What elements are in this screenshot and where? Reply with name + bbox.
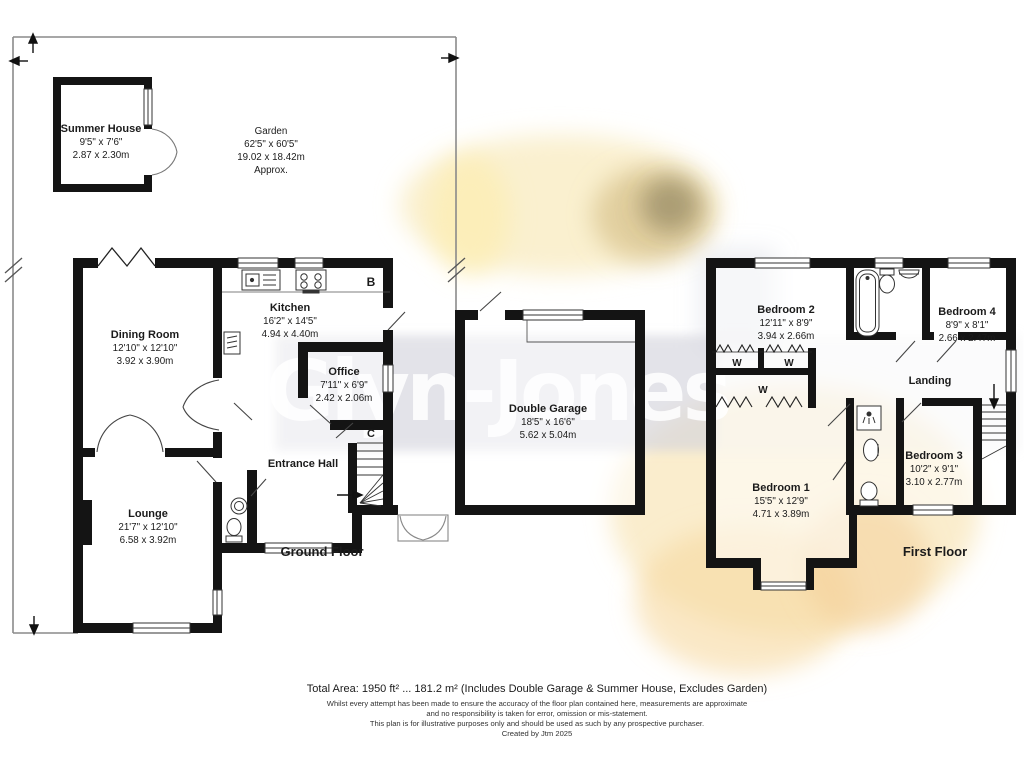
entrance-hall-name: Entrance Hall [268, 458, 338, 470]
bathroom-toilet-icon [880, 269, 895, 293]
svg-text:16'2" x 14'5": 16'2" x 14'5" [263, 316, 317, 327]
svg-text:18'5" x 16'6": 18'5" x 16'6" [521, 417, 575, 428]
footer: Total Area: 1950 ft² ... 181.2 m² (Inclu… [307, 683, 767, 738]
bedroom3-name: Bedroom 3 [905, 450, 962, 462]
cupboard-marker: C [367, 428, 375, 440]
bedroom1-name: Bedroom 1 [752, 482, 809, 494]
kitchen-name: Kitchen [270, 302, 311, 314]
svg-text:3.92 x 3.90m: 3.92 x 3.90m [117, 356, 174, 367]
wc-basin-icon [231, 498, 247, 514]
svg-text:10'2" x 9'1": 10'2" x 9'1" [910, 464, 959, 475]
svg-text:4.94 x 4.40m: 4.94 x 4.40m [262, 329, 319, 340]
svg-text:12'10" x 12'10": 12'10" x 12'10" [113, 343, 178, 354]
summer-house-window [144, 89, 152, 125]
front-door [398, 515, 448, 541]
created-by-text: Created by Jtm 2025 [502, 729, 573, 738]
bath-icon [856, 270, 879, 336]
svg-text:5.62 x 5.04m: 5.62 x 5.04m [520, 430, 577, 441]
svg-text:21'7" x 12'10": 21'7" x 12'10" [118, 522, 178, 533]
summer-house-name: Summer House [61, 123, 142, 135]
hob-icon [296, 270, 326, 293]
svg-text:62'5" x 60'5": 62'5" x 60'5" [244, 139, 298, 150]
office-name: Office [328, 366, 359, 378]
bedroom4-name: Bedroom 4 [938, 306, 996, 318]
ground-floor-label: Ground Floor [280, 544, 363, 559]
summer-house-doors [152, 129, 177, 175]
wardrobe-marker-2: W [784, 358, 794, 369]
shower-basin-icon [864, 439, 879, 461]
svg-text:15'5" x 12'9": 15'5" x 12'9" [754, 496, 808, 507]
disclaimer-line-2: and no responsibility is taken for error… [426, 709, 647, 718]
wardrobe-marker-3: W [758, 385, 768, 396]
shower-toilet-icon [860, 482, 878, 506]
garage-door-swing [480, 292, 501, 311]
garage-name: Double Garage [509, 403, 587, 415]
bedroom2-name: Bedroom 2 [757, 304, 814, 316]
floorplan-canvas: Glyn-Jones Summer House [0, 0, 1024, 768]
shower-icon [857, 406, 881, 430]
svg-text:3.10 x 2.77m: 3.10 x 2.77m [906, 477, 963, 488]
wardrobe-marker-1: W [732, 358, 742, 369]
svg-text:3.94 x 2.66m: 3.94 x 2.66m [758, 331, 815, 342]
svg-text:2.66 x 2.47m: 2.66 x 2.47m [939, 333, 996, 344]
total-area-text: Total Area: 1950 ft² ... 181.2 m² (Inclu… [307, 683, 767, 695]
sink-icon [242, 270, 280, 290]
wc-toilet-icon [226, 519, 242, 543]
svg-text:12'11" x 8'9": 12'11" x 8'9" [759, 318, 813, 329]
landing-name: Landing [909, 375, 952, 387]
svg-text:8'9" x 8'1": 8'9" x 8'1" [946, 320, 989, 331]
dining-room-name: Dining Room [111, 329, 180, 341]
svg-text:2.42 x 2.06m: 2.42 x 2.06m [316, 393, 373, 404]
svg-text:19.02 x 18.42m: 19.02 x 18.42m [237, 152, 305, 163]
summer-house-imperial: 9'5" x 7'6" [80, 137, 123, 148]
svg-text:Garden: Garden [255, 126, 288, 137]
garden-label: Garden 62'5" x 60'5" 19.02 x 18.42m Appr… [237, 126, 305, 176]
svg-text:7'11" x 6'9": 7'11" x 6'9" [320, 380, 368, 391]
svg-text:4.71 x 3.89m: 4.71 x 3.89m [753, 509, 810, 520]
boiler-marker: B [367, 275, 376, 289]
disclaimer-line-3: This plan is for illustrative purposes o… [370, 719, 704, 728]
first-floor-label: First Floor [903, 544, 967, 559]
svg-text:Approx.: Approx. [254, 165, 288, 176]
garage-window [523, 310, 583, 320]
summer-house-metric: 2.87 x 2.30m [73, 150, 130, 161]
lounge-name: Lounge [128, 508, 168, 520]
fridge-icon [224, 332, 240, 354]
disclaimer-line-1: Whilst every attempt has been made to en… [327, 699, 747, 708]
svg-text:6.58 x 3.92m: 6.58 x 3.92m [120, 535, 177, 546]
floorplan-page: Glyn-Jones Summer House [0, 0, 1024, 768]
